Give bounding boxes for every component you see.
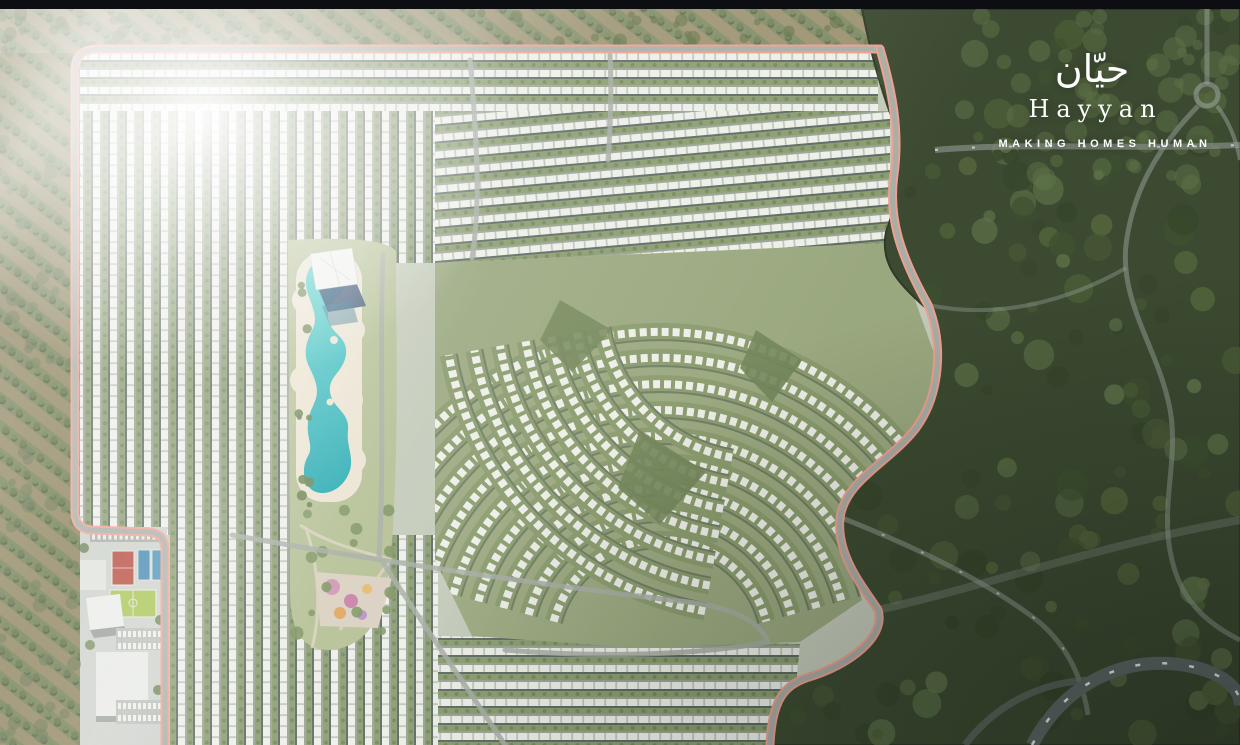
- brand-tagline: MAKING HOMES HUMAN: [994, 138, 1190, 150]
- lagoon-island: [327, 399, 334, 406]
- brand-name: Hayyan: [994, 95, 1190, 123]
- padel-court-blue: [138, 550, 150, 580]
- brand-arabic-wordmark: حيّان: [994, 48, 1190, 92]
- clubhouse-building: [86, 594, 124, 630]
- brand-logo: حيّان Hayyan MAKING HOMES HUMAN: [994, 48, 1190, 150]
- roundabout: [1196, 84, 1218, 106]
- hayyan-masterplan-render: حيّان Hayyan MAKING HOMES HUMAN: [0, 0, 1240, 745]
- lagoon-island: [330, 336, 338, 344]
- sports-building: [80, 560, 106, 590]
- sports-complex: [75, 527, 167, 745]
- letterbox-top: [0, 0, 1240, 9]
